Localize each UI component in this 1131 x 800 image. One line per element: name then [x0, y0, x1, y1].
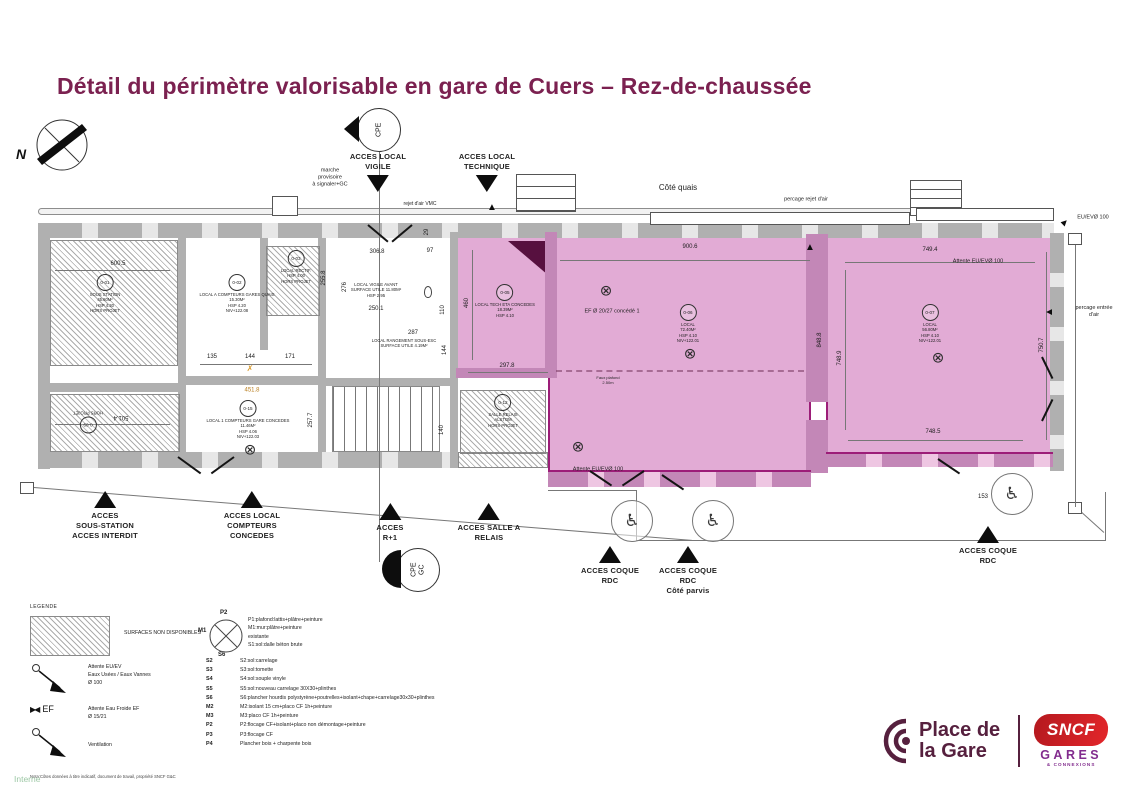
wall-inner-6 — [184, 376, 324, 385]
legend-item-ef: ▶◀ EF Attente Eau Froide EF Ø 15/21 — [30, 704, 201, 722]
toilet-icon — [424, 286, 432, 298]
room-label: 0-07LOCAL 56.80M² HSP 4.10 NIV+122.01 — [919, 304, 941, 344]
dim-line-8 — [472, 250, 473, 360]
cpe-gc-label: CPE GC — [410, 563, 425, 577]
access-triangle-icon — [977, 526, 999, 543]
material-code: S3 — [206, 667, 240, 673]
legend-item-surfaces: SURFACES NON DISPONIBLES — [30, 616, 201, 656]
ef-symbol-label: EF — [42, 704, 54, 714]
room-0-06-fill — [548, 230, 811, 473]
shaft-triangle — [508, 241, 548, 275]
access-label-text: ACCES COQUE RDC — [581, 566, 639, 586]
material-description: P2:flocage CF+isolant+placo non démontag… — [240, 722, 366, 728]
access-label: ACCES COQUE RDC — [959, 523, 1017, 566]
material-row: P4Plancher bois + charpente bois — [206, 741, 626, 747]
cpe-gc-circle: CPE GC — [396, 548, 440, 592]
access-label: ACCES LOCAL VIGILE — [350, 152, 406, 195]
material-row: P3P3:flocage CF — [206, 732, 626, 738]
cpe-gc-symbol: CPE GC — [396, 548, 440, 592]
access-triangle-icon — [478, 503, 500, 520]
access-triangle-icon — [677, 546, 699, 563]
material-row: S2S2:sol:carrelage — [206, 658, 626, 664]
plan-note: EF Ø 20/27 concédé 1 — [584, 309, 639, 316]
dimension-label: 276 — [342, 282, 348, 292]
dimension-label: 144 — [442, 345, 448, 355]
room-label: 0-05LOCAL TECH ETA CONCEDES 18.39M² HSP … — [475, 284, 535, 318]
material-description: S6:plancher hourdis polystyrène+poutrell… — [240, 695, 435, 701]
sncf-logo-block: SNCF GARES & CONNEXIONS — [1034, 714, 1108, 767]
classification-label: Interne — [14, 774, 40, 784]
room-number: 0-07 — [921, 304, 938, 321]
compass-graphic — [16, 112, 96, 178]
room-label: 0-09HORS PROJET — [73, 410, 103, 433]
legend-note: Nota:Côtes données à titre indicatif, do… — [30, 774, 201, 779]
plan-note: LOCAL RANGEMENT SOUS-ESC SURFACE UTILE 4… — [372, 338, 436, 349]
dimension-label: 848.8 — [817, 332, 823, 347]
material-description: P3:flocage CF — [240, 732, 273, 738]
sncf-logo-text: SNCF — [1047, 720, 1095, 740]
eu-ev-arrow-icon — [30, 662, 74, 698]
dimension-label: 900.6 — [682, 244, 697, 250]
small-box-4 — [20, 482, 34, 494]
access-label: ACCES COQUE RDC — [581, 543, 639, 586]
room-number: 0-01 — [97, 274, 114, 291]
page-title: Détail du périmètre valorisable en gare … — [57, 73, 812, 100]
cpe-label: CPE — [375, 123, 383, 137]
dimension-label: 297.8 — [499, 363, 514, 369]
dimension-label: 110 — [440, 305, 446, 315]
hatch-strip — [458, 452, 548, 468]
room-description: LOCAL TECH ETA CONCEDES 18.39M² HSP 4.10 — [475, 302, 535, 318]
brand-divider — [1018, 715, 1020, 767]
canopy-rect-2 — [916, 208, 1054, 221]
small-box-1 — [272, 196, 298, 216]
material-row: S3S3:sol:tomette — [206, 667, 626, 673]
small-box-2 — [1068, 233, 1082, 245]
connexions-label: & CONNEXIONS — [1034, 762, 1108, 767]
dimension-label: 750.7 — [1039, 337, 1045, 352]
wheelchair-icon: ♿ — [991, 473, 1033, 515]
access-triangle-icon — [379, 503, 401, 520]
access-label-text: ACCES R+1 — [376, 523, 403, 543]
dimension-label: 749.4 — [922, 247, 937, 253]
pink-wall-1 — [545, 232, 557, 378]
leader-line-short — [1081, 512, 1104, 533]
light-fixture-icon: ⊗ — [572, 440, 585, 455]
plan-note: Attente EU/EVØ 100 — [573, 467, 623, 474]
wall-right — [1050, 233, 1064, 471]
cpe-circle: CPE — [357, 108, 401, 152]
dimension-label: 255.8 — [321, 270, 327, 285]
plan-note: percage entrée d'air — [1076, 305, 1113, 319]
flow-arrow-icon: ▲ — [487, 203, 497, 213]
material-symbol-top: P2 — [220, 610, 227, 616]
room-number: 0-09 — [80, 416, 97, 433]
room-number: 0-12 — [495, 394, 512, 411]
wheelchair-icon: ♿ — [611, 500, 653, 542]
dim-line-10 — [845, 270, 846, 430]
material-description: S5:sol:nouveau carrelage 30X30+plinthes — [240, 686, 336, 692]
access-label-text: ACCES LOCAL COMPTEURS CONCEDES — [224, 511, 280, 540]
material-description: S3:sol:tomette — [240, 667, 273, 673]
wall-inner-5 — [38, 383, 180, 392]
legend-ventilation-label: Ventilation — [88, 742, 112, 750]
access-triangle-icon — [241, 491, 263, 508]
room-description: LOCAL 56.80M² HSP 4.10 NIV+122.01 — [919, 322, 941, 344]
room-description: HORS PROJET — [73, 410, 103, 415]
room-description: LOCAL 1 COMPTEURS GARE CONCEDES 11.46M² … — [207, 418, 290, 440]
flow-arrow-icon: ▲ — [805, 243, 815, 253]
material-circle-icon — [208, 618, 244, 654]
branding: Place de la Gare SNCF GARES & CONNEXIONS — [880, 714, 1108, 767]
dimension-label: 460 — [464, 298, 470, 308]
dimension-label: 29 — [424, 229, 430, 236]
plan-note: percage rejet d'air — [784, 197, 828, 204]
room-number: 0-06 — [679, 304, 696, 321]
material-code: P4 — [206, 741, 240, 747]
access-label-text: ACCES SALLE A RELAIS — [458, 523, 521, 543]
dimension-label: 140 — [439, 425, 445, 435]
dimension-label: 257.7 — [308, 412, 314, 427]
wall-left — [38, 223, 50, 469]
material-description: S2:sol:carrelage — [240, 658, 278, 664]
room-number: 0-02 — [228, 274, 245, 291]
access-triangle-icon — [367, 175, 389, 192]
access-triangle-icon — [94, 491, 116, 508]
parvis-line-2 — [1105, 492, 1106, 541]
dimension-label: 748.9 — [837, 350, 843, 365]
room-label: 0-15LOCAL 1 COMPTEURS GARE CONCEDES 11.4… — [207, 400, 290, 440]
light-fixture-icon: ⊗ — [684, 347, 697, 362]
place-de-la-gare-logo: Place de la Gare — [919, 720, 1000, 761]
ventilation-arrow-icon — [30, 728, 74, 764]
legend-item-ventilation: Ventilation — [30, 728, 201, 764]
room-description: LOCAL A COMPTEURS GARES QUAIS 15.30M² HS… — [199, 292, 274, 314]
access-label: ACCES LOCAL TECHNIQUE — [459, 152, 515, 195]
material-code: S4 — [206, 676, 240, 682]
wheelchair-icon: ♿ — [692, 500, 734, 542]
dim-line-6 — [55, 270, 170, 271]
material-description: M2:isolant 15 cm+placo CF 1h+peinture — [240, 704, 332, 710]
hatch-room-0-09 — [50, 394, 180, 452]
compass-icon: N — [16, 112, 96, 183]
dimension-label: 501.4 — [113, 414, 128, 420]
material-row: M2M2:isolant 15 cm+placo CF 1h+peinture — [206, 704, 626, 710]
legend-surfaces-label: SURFACES NON DISPONIBLES — [124, 630, 201, 638]
ef-bowtie-glyph: ▶◀ — [30, 705, 38, 714]
dimension-label: 748.5 — [925, 429, 940, 435]
dimension-label: 306.8 — [369, 249, 384, 255]
dim-line-3 — [848, 440, 1023, 441]
room-number: 0-03 — [288, 250, 305, 267]
room-label: 0-03LOCAL RECTIF. HSP 4.00 HORS PROJET — [281, 250, 312, 284]
light-fixture-icon: ⊗ — [600, 284, 613, 299]
room-number: 0-15 — [239, 400, 256, 417]
access-label: ACCES LOCAL COMPTEURS CONCEDES — [224, 488, 280, 540]
dashed-line — [556, 370, 804, 372]
material-row: P2P2:flocage CF+isolant+placo non démont… — [206, 722, 626, 728]
legend-item-eu-ev: Attente EU/EV Eaux Usées / Eaux Vannes Ø… — [30, 662, 201, 698]
dimension-label: 144 — [245, 354, 255, 360]
plan-note: rejet d'air VMC — [404, 201, 437, 207]
plan-note: LOCAL VIGILE AVANT SURFACE UTILE 11.80M²… — [351, 282, 401, 298]
dim-line-5 — [200, 364, 312, 365]
dim-line-2 — [845, 262, 1035, 263]
material-row: S6S6:plancher hourdis polystyrène+poutre… — [206, 695, 626, 701]
access-label: ACCES SOUS-STATION ACCES INTERDIT — [72, 488, 138, 540]
plan-note: marche provisoire à signaler+GC — [312, 168, 347, 189]
dimension-label: 153 — [978, 494, 988, 500]
gares-label: GARES — [1034, 748, 1108, 762]
material-code: S6 — [206, 695, 240, 701]
material-symbol-left: M1 — [198, 628, 206, 634]
flow-arrow-icon: ▲ — [1057, 216, 1071, 230]
room-label: 0-01SOUS STATION 45.80M² HSP 4.30 HORS P… — [90, 274, 121, 314]
room-description: LOCAL 72.40M² HSP 4.10 NIV+122.01 — [677, 322, 699, 344]
parvis-line-3 — [548, 490, 637, 491]
access-label-text: ACCES LOCAL TECHNIQUE — [459, 152, 515, 172]
canopy-rect-1 — [650, 212, 910, 225]
place-de-la-gare-icon — [880, 715, 914, 767]
material-row: S5S5:sol:nouveau carrelage 30X30+plinthe… — [206, 686, 626, 692]
cpe-symbol: CPE — [357, 108, 401, 152]
sncf-logo: SNCF — [1032, 714, 1109, 746]
room-label: 0-06LOCAL 72.40M² HSP 4.10 NIV+122.01 — [677, 304, 699, 344]
wall-inner-4 — [450, 232, 458, 468]
dimension-label: 287 — [408, 330, 418, 336]
material-code: M2 — [206, 704, 240, 710]
table-grid-1 — [516, 174, 576, 212]
access-triangle-icon — [476, 175, 498, 192]
compass-north-label: N — [16, 146, 26, 162]
dimension-label: 600.5 — [110, 261, 125, 267]
dim-line-4 — [468, 372, 548, 373]
plan-note: 451.8 — [244, 387, 259, 395]
wall-inner-7 — [326, 378, 452, 386]
room-label: 0-12SALLE RELAIS ALSTOM HORS PROJET — [488, 394, 518, 428]
material-rows: S2S2:sol:carrelageS3S3:sol:tometteS4S4:s… — [206, 658, 626, 750]
plan-note: ✗ — [247, 364, 254, 374]
legend-ef-label: Attente Eau Froide EF Ø 15/21 — [88, 706, 139, 722]
ef-valve-icon: ▶◀ EF — [30, 704, 74, 714]
material-row: S4S4:sol:souple vinyle — [206, 676, 626, 682]
room-0-07-fill — [826, 233, 1053, 457]
material-code: S5 — [206, 686, 240, 692]
dim-line-1 — [560, 260, 810, 261]
material-code: S2 — [206, 658, 240, 664]
material-code: M3 — [206, 713, 240, 719]
hatch-swatch-icon — [30, 616, 110, 656]
room-description: SALLE RELAIS ALSTOM HORS PROJET — [488, 412, 518, 428]
access-label: ACCES COQUE RDC Côté parvis — [659, 543, 717, 595]
plan-note: Faux plafond 2.50m — [596, 375, 619, 385]
slide-canvas: Détail du périmètre valorisable en gare … — [0, 0, 1131, 800]
access-label-text: ACCES SOUS-STATION ACCES INTERDIT — [72, 511, 138, 540]
pink-wall-2 — [456, 368, 548, 378]
access-label-text: ACCES COQUE RDC — [959, 546, 1017, 566]
legend-title: LEGENDE — [30, 604, 201, 610]
flow-arrow-icon: ▲ — [1045, 307, 1055, 317]
cpe-triangle-icon — [344, 116, 359, 142]
room-description: LOCAL RECTIF. HSP 4.00 HORS PROJET — [281, 268, 312, 284]
pink-wall-4 — [806, 420, 828, 473]
ref-line-right — [1075, 245, 1076, 507]
legend-eu-ev-label: Attente EU/EV Eaux Usées / Eaux Vannes Ø… — [88, 664, 151, 687]
room-description: SOUS STATION 45.80M² HSP 4.30 HORS PROJE… — [90, 292, 121, 314]
stairs — [332, 386, 440, 452]
material-description: S4:sol:souple vinyle — [240, 676, 286, 682]
cpe-gc-halfmoon-icon — [382, 550, 401, 588]
legend: LEGENDE SURFACES NON DISPONIBLES Attente… — [30, 604, 201, 779]
material-header: P1:plafond:lattis+plâtre+peinture M1:mur… — [248, 616, 323, 649]
dimension-label: 250.1 — [368, 306, 383, 312]
room-number: 0-05 — [496, 284, 513, 301]
plan-note: Côté quais — [659, 183, 697, 193]
material-code: P2 — [206, 722, 240, 728]
access-triangle-icon — [599, 546, 621, 563]
room-label: 0-02LOCAL A COMPTEURS GARES QUAIS 15.30M… — [199, 274, 274, 314]
light-fixture-icon: ⊗ — [932, 351, 945, 366]
dimension-label: 171 — [285, 354, 295, 360]
access-label: ACCES R+1 — [376, 500, 403, 543]
access-label-text: ACCES LOCAL VIGILE — [350, 152, 406, 172]
dimension-label: 135 — [207, 354, 217, 360]
material-description: Plancher bois + charpente bois — [240, 741, 311, 747]
access-label-text: ACCES COQUE RDC Côté parvis — [659, 566, 717, 595]
light-fixture-icon: ⊗ — [244, 443, 257, 458]
material-code: P3 — [206, 732, 240, 738]
material-row: M3M3:placo CF 1h+peinture — [206, 713, 626, 719]
dimension-label: 97 — [427, 248, 434, 254]
plan-note: Attente EU/EVØ 100 — [953, 259, 1003, 266]
plan-note: EU/EVØ 100 — [1077, 215, 1109, 222]
material-description: M3:placo CF 1h+peinture — [240, 713, 298, 719]
access-label: ACCES SALLE A RELAIS — [458, 500, 521, 543]
